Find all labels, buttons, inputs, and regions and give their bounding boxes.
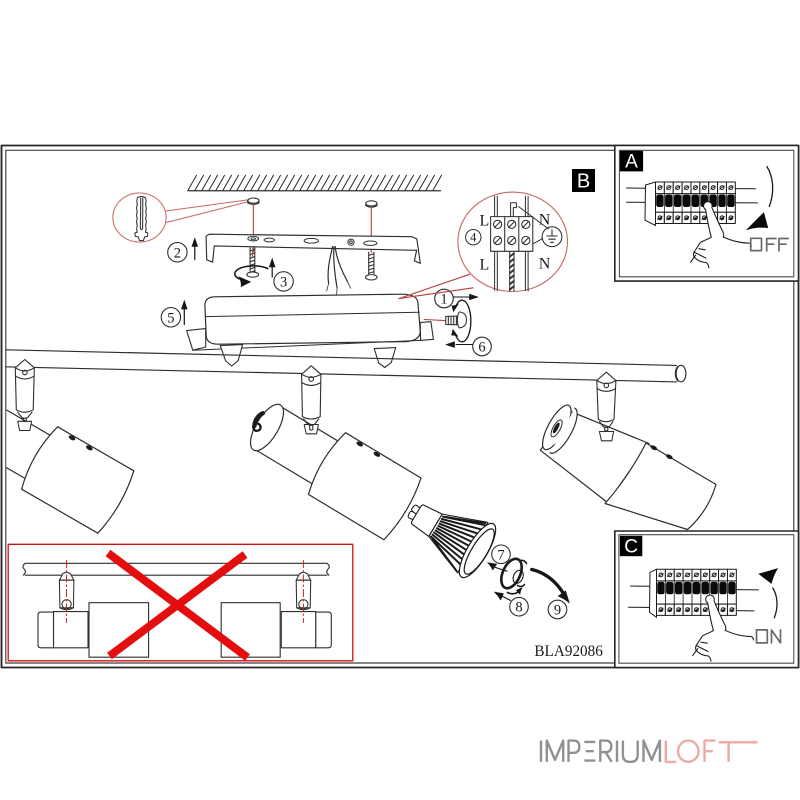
svg-text:A: A xyxy=(625,152,638,173)
svg-text:C: C xyxy=(624,537,638,558)
svg-text:8: 8 xyxy=(515,600,522,616)
svg-text:1: 1 xyxy=(440,292,447,308)
svg-text:3: 3 xyxy=(280,274,287,290)
svg-text:9: 9 xyxy=(554,603,561,619)
svg-text:7: 7 xyxy=(497,547,504,563)
svg-text:5: 5 xyxy=(167,310,174,326)
svg-text:4: 4 xyxy=(470,231,477,245)
svg-text:L: L xyxy=(480,256,490,273)
svg-text:6: 6 xyxy=(478,340,485,356)
svg-text:N: N xyxy=(539,212,551,229)
svg-text:N: N xyxy=(539,256,551,273)
svg-text:2: 2 xyxy=(174,245,181,261)
svg-text:B: B xyxy=(577,171,590,193)
svg-text:BLA92086: BLA92086 xyxy=(534,643,603,660)
svg-text:L: L xyxy=(480,212,490,229)
